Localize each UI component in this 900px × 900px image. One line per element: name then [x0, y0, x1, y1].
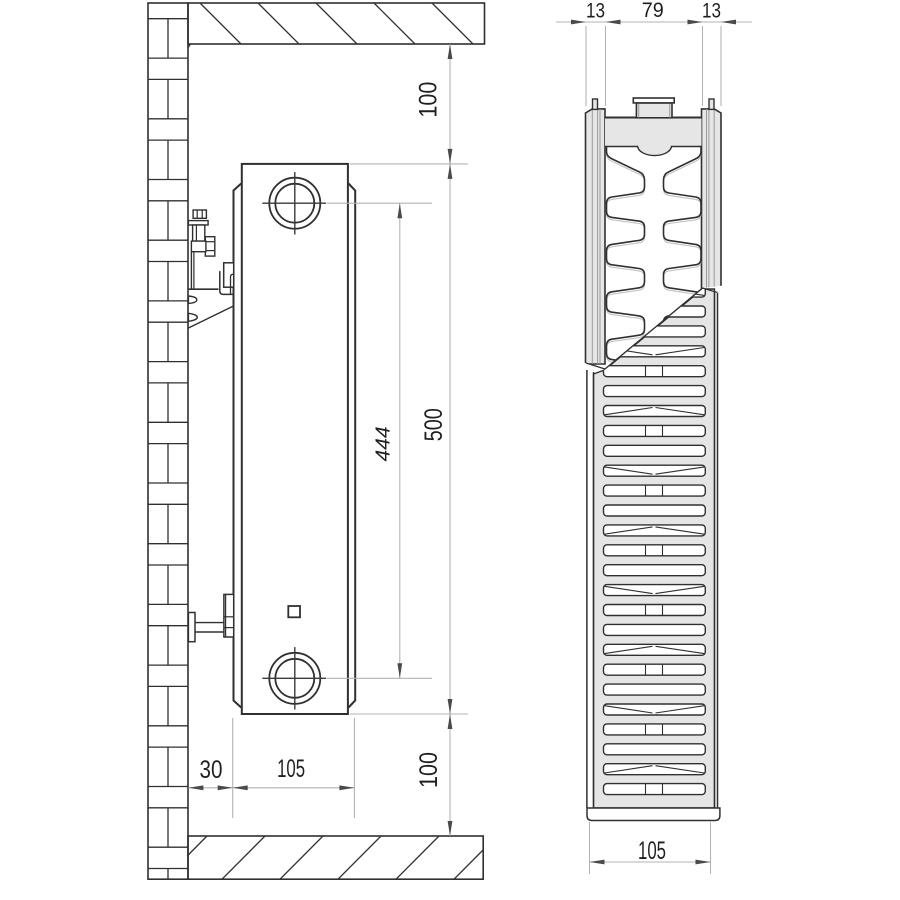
svg-text:444: 444 — [373, 427, 395, 462]
svg-text:500: 500 — [420, 408, 448, 441]
svg-text:30: 30 — [200, 756, 223, 784]
svg-text:13: 13 — [702, 0, 721, 23]
svg-text:13: 13 — [586, 0, 605, 23]
svg-text:79: 79 — [642, 0, 664, 22]
svg-text:100: 100 — [415, 752, 443, 788]
svg-text:105: 105 — [638, 837, 666, 865]
svg-text:100: 100 — [414, 82, 442, 118]
svg-text:105: 105 — [277, 755, 305, 783]
